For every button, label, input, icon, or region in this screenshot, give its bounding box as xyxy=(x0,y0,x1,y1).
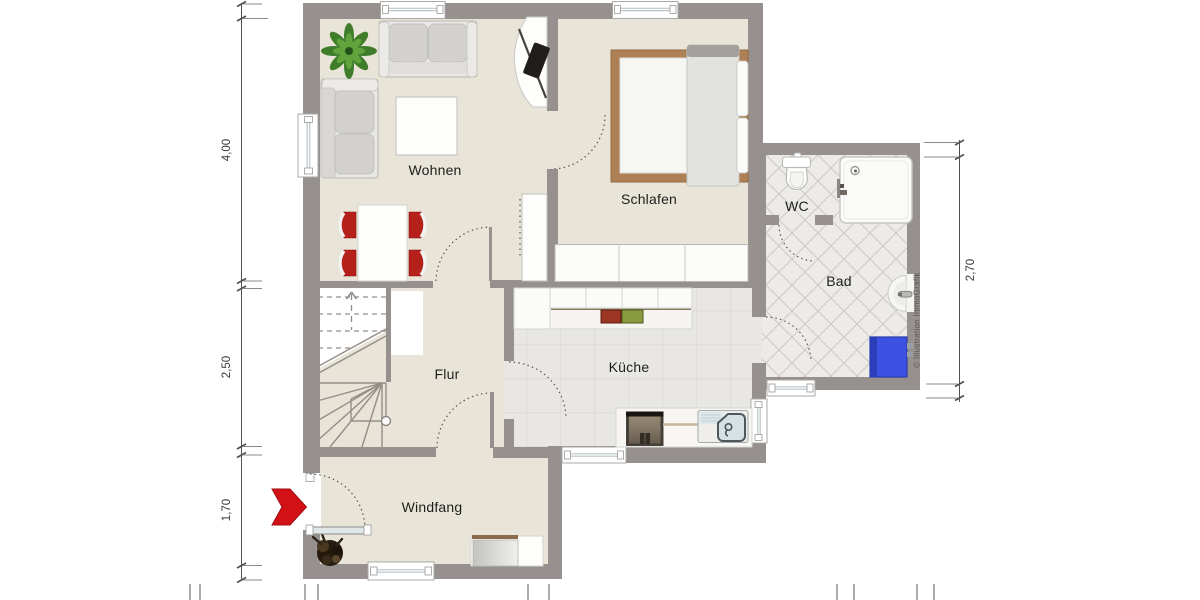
svg-text:2,70: 2,70 xyxy=(965,259,977,281)
svg-text:Flur: Flur xyxy=(435,366,460,382)
svg-text:2,50: 2,50 xyxy=(221,356,233,378)
svg-text:Wohnen: Wohnen xyxy=(408,162,461,178)
svg-text:Windfang: Windfang xyxy=(402,499,463,515)
svg-text:© Illustration ImmoGrafik: © Illustration ImmoGrafik xyxy=(913,271,922,367)
svg-text:Küche: Küche xyxy=(609,359,650,375)
svg-text:Schlafen: Schlafen xyxy=(621,191,677,207)
svg-text:WC: WC xyxy=(785,198,809,214)
svg-text:4,00: 4,00 xyxy=(221,139,233,161)
svg-text:1,70: 1,70 xyxy=(221,499,233,521)
svg-text:Bad: Bad xyxy=(826,273,852,289)
